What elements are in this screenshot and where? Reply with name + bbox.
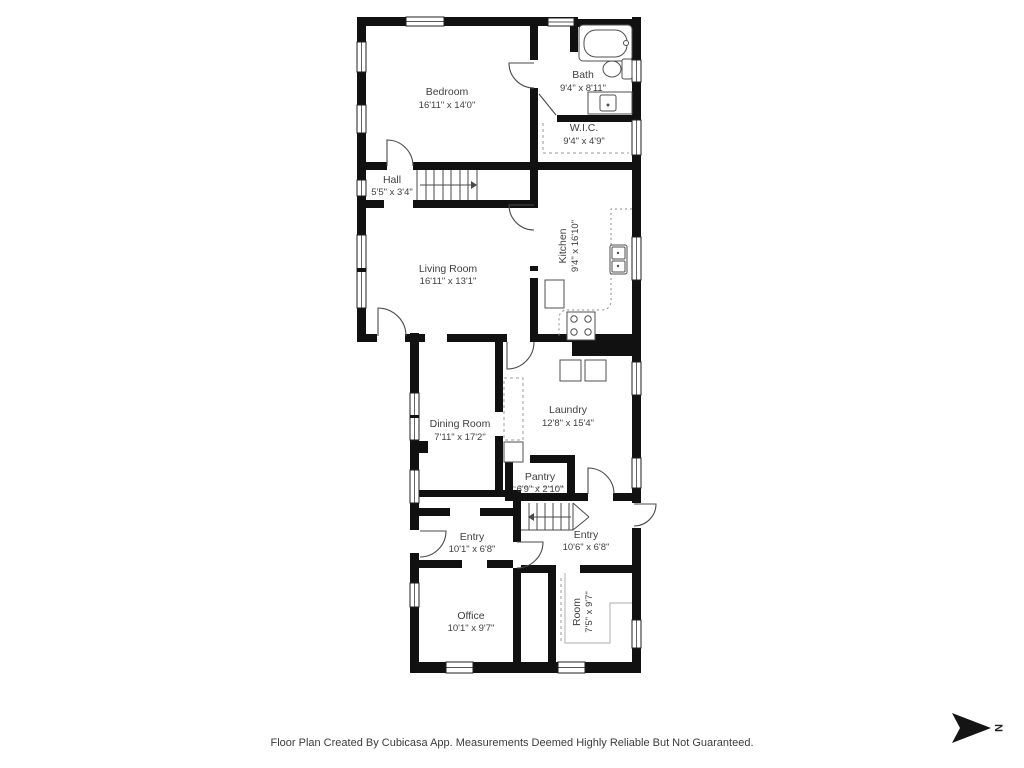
floor-plan-image: Bedroom 16'11" x 14'0" Bath 9'4" x 8'11"… <box>0 0 1024 768</box>
room-dimensions: 6'9" x 2'10" <box>517 484 564 495</box>
room-name: Living Room <box>419 263 478 275</box>
room-dimensions: 9'4" x 4'9" <box>563 136 605 147</box>
laundry-cabinet <box>504 378 523 462</box>
room-dimensions: 9'4" x 16'10" <box>570 220 581 272</box>
room-label-bedroom: Bedroom 16'11" x 14'0" <box>419 86 476 111</box>
room-label-office: Office 10'1" x 9'7" <box>448 610 495 634</box>
room-name: Kitchen <box>557 228 569 263</box>
chimney <box>572 342 632 356</box>
room-dimensions: 9'4" x 8'11" <box>560 83 606 94</box>
north-arrow-icon: N <box>952 713 1004 743</box>
bathroom-sink-icon <box>588 92 632 114</box>
room-label-hall: Hall 5'5" x 3'4" <box>371 174 413 198</box>
room-dimensions: 7'11" x 17'2" <box>434 432 485 443</box>
laundry-entry-door <box>588 468 614 494</box>
bath-door <box>509 63 534 88</box>
washer-icon <box>560 360 581 381</box>
room-label-bath: Bath 9'4" x 8'11" <box>560 69 606 94</box>
room-label-living-room: Living Room 16'11" x 13'1" <box>419 263 478 287</box>
entry-exterior-door-left <box>420 531 446 557</box>
wic-door <box>539 94 556 115</box>
room-label-wic: W.I.C. 9'4" x 4'9" <box>563 122 605 147</box>
room-label-entry-left: Entry 10'1" x 6'8" <box>449 531 496 555</box>
room-label-room: Room 7'5" x 9'7" <box>571 591 595 633</box>
living-room-exterior-door <box>378 308 406 336</box>
room-dimensions: 10'6" x 6'8" <box>563 542 610 553</box>
room-dimensions: 12'8" x 15'4" <box>542 418 594 429</box>
room-label-pantry: Pantry 6'9" x 2'10" <box>517 471 564 495</box>
stove-icon <box>567 312 595 340</box>
living-room-door <box>509 205 534 230</box>
walls <box>357 17 641 673</box>
room-name: Dining Room <box>430 418 491 430</box>
room-label-laundry: Laundry 12'8" x 15'4" <box>542 404 594 429</box>
room-name: Room <box>571 598 583 626</box>
room-dimensions: 7'5" x 9'7" <box>584 591 595 633</box>
room-dimensions: 10'1" x 9'7" <box>448 623 495 634</box>
stairs-entry-icon <box>521 503 589 530</box>
stairs-up-icon <box>417 170 477 200</box>
room-name: Entry <box>460 531 485 543</box>
toilet-icon <box>603 59 632 79</box>
room-label-kitchen: Kitchen 9'4" x 16'10" <box>557 220 581 272</box>
room-name: Laundry <box>549 404 588 416</box>
room-dimensions: 10'1" x 6'8" <box>449 544 496 555</box>
refrigerator-icon <box>545 280 564 308</box>
room-name: Bath <box>572 69 594 81</box>
room-name: Office <box>457 610 484 622</box>
room-name: Pantry <box>525 471 556 483</box>
room-name: W.I.C. <box>570 122 599 134</box>
bathtub-icon <box>579 25 632 61</box>
north-label: N <box>992 724 1004 732</box>
dryer-icon <box>585 360 606 381</box>
room-name: Hall <box>383 174 401 186</box>
room-dimensions: 16'11" x 13'1" <box>420 276 477 287</box>
laundry-door <box>507 342 534 369</box>
kitchen-sink-icon <box>610 245 627 274</box>
room-label-dining-room: Dining Room 7'11" x 17'2" <box>430 418 491 443</box>
bedroom-door <box>387 140 413 166</box>
room-dimensions: 16'11" x 14'0" <box>419 100 476 111</box>
room-label-entry-right: Entry 10'6" x 6'8" <box>563 529 610 553</box>
room-name: Bedroom <box>426 86 469 98</box>
room-name: Entry <box>574 529 599 541</box>
footer-disclaimer: Floor Plan Created By Cubicasa App. Meas… <box>270 737 753 749</box>
room-dimensions: 5'5" x 3'4" <box>371 187 413 198</box>
